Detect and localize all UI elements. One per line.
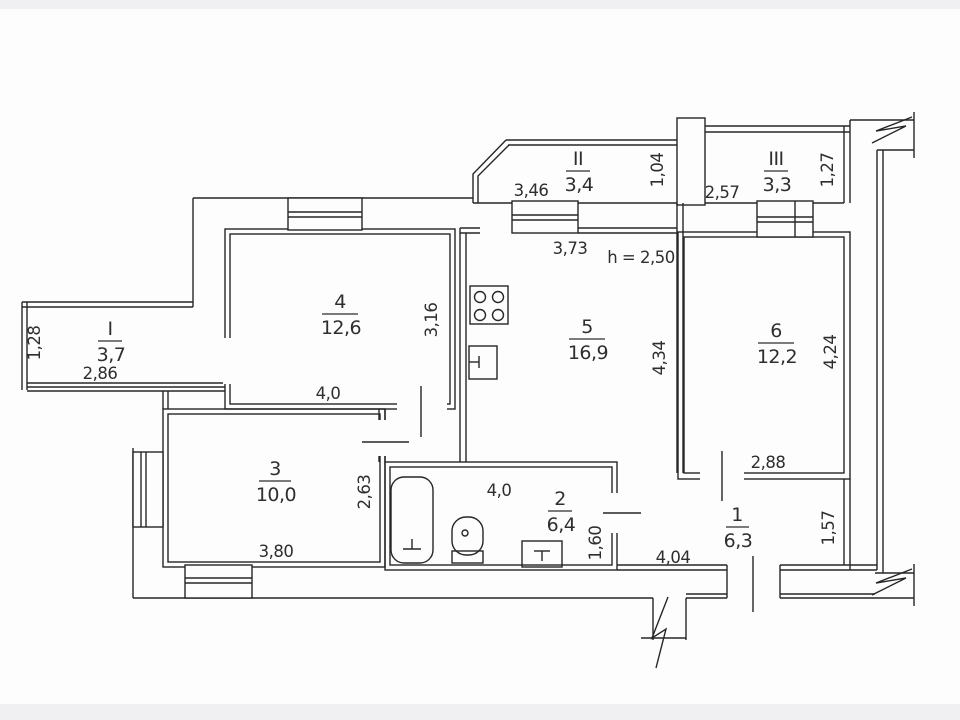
floor-plan-page: 1 6,3 2 6,4 3 10,0 4 12,6 5 — [0, 0, 960, 720]
label-balcony-1: I 3,7 — [97, 318, 126, 366]
window-room4 — [288, 198, 362, 230]
svg-text:II: II — [573, 148, 583, 170]
label-room2: 2 6,4 — [547, 488, 576, 536]
stove-icon — [470, 286, 508, 324]
dim-balcony1-depth: 1,28 — [25, 326, 44, 361]
windows — [133, 198, 813, 598]
dim-balcony2-depth: 1,04 — [648, 153, 667, 188]
svg-text:12,2: 12,2 — [757, 346, 797, 368]
dim-room4-width: 4,0 — [316, 384, 341, 403]
dim-balcony2-width: 3,46 — [514, 181, 549, 200]
dim-kitchen-height: 4,34 — [650, 341, 669, 376]
svg-text:5: 5 — [581, 316, 593, 338]
dim-room6-height: 4,24 — [821, 335, 840, 370]
svg-text:3,3: 3,3 — [763, 174, 792, 196]
label-room1: 1 6,3 — [724, 504, 753, 552]
label-room3: 3 10,0 — [256, 458, 296, 506]
dim-room1-height: 1,57 — [819, 511, 838, 546]
dim-balcony3-depth: 1,27 — [818, 153, 837, 188]
label-balcony-3: III 3,3 — [763, 148, 792, 196]
dim-room3-height: 2,63 — [355, 475, 374, 510]
room-labels: 1 6,3 2 6,4 3 10,0 4 12,6 5 — [97, 148, 798, 552]
label-room6: 6 12,2 — [757, 320, 797, 368]
svg-text:I: I — [107, 318, 112, 340]
toilet-icon — [452, 517, 483, 563]
dim-room3-width: 3,80 — [259, 542, 294, 561]
label-room4: 4 12,6 — [321, 291, 361, 339]
break-symbols — [641, 117, 912, 668]
kitchen-sink-icon — [469, 346, 497, 379]
break-top-right — [872, 117, 912, 143]
svg-text:6,4: 6,4 — [547, 514, 576, 536]
svg-text:16,9: 16,9 — [568, 342, 608, 364]
svg-text:III: III — [768, 148, 783, 170]
window-room3-bottom — [185, 565, 252, 598]
dim-room2-height: 1,60 — [586, 526, 605, 561]
label-room5: 5 16,9 — [568, 316, 608, 364]
svg-text:2: 2 — [554, 488, 566, 510]
window-kitchen-balcony — [512, 201, 578, 233]
floor-plan-drawing: 1 6,3 2 6,4 3 10,0 4 12,6 5 — [0, 0, 960, 720]
svg-text:6,3: 6,3 — [724, 530, 753, 552]
window-room6-balcony — [757, 201, 813, 237]
svg-text:3,4: 3,4 — [565, 174, 594, 196]
dim-room6-width: 2,88 — [751, 453, 786, 472]
break-entrance — [652, 597, 668, 668]
window-room3-left — [133, 452, 163, 527]
label-balcony-2: II 3,4 — [565, 148, 594, 196]
fixtures — [391, 286, 562, 567]
wash-basin-icon — [522, 541, 562, 567]
dim-balcony1-width: 2,86 — [83, 364, 118, 383]
bathtub-icon — [391, 477, 433, 563]
svg-text:10,0: 10,0 — [256, 484, 296, 506]
dim-room1-width: 4,04 — [656, 548, 691, 567]
svg-text:12,6: 12,6 — [321, 317, 361, 339]
dim-balcony3-left: 2,57 — [705, 183, 740, 202]
dim-room4-height: 3,16 — [422, 303, 441, 338]
svg-text:6: 6 — [770, 320, 782, 342]
dim-ceiling-height: h = 2,50 — [607, 248, 675, 267]
svg-text:3: 3 — [269, 458, 281, 480]
dim-room2-width: 4,0 — [487, 481, 512, 500]
dim-kitchen-width: 3,73 — [553, 239, 588, 258]
svg-text:4: 4 — [334, 291, 346, 313]
svg-text:3,7: 3,7 — [97, 344, 126, 366]
svg-text:1: 1 — [731, 504, 743, 526]
